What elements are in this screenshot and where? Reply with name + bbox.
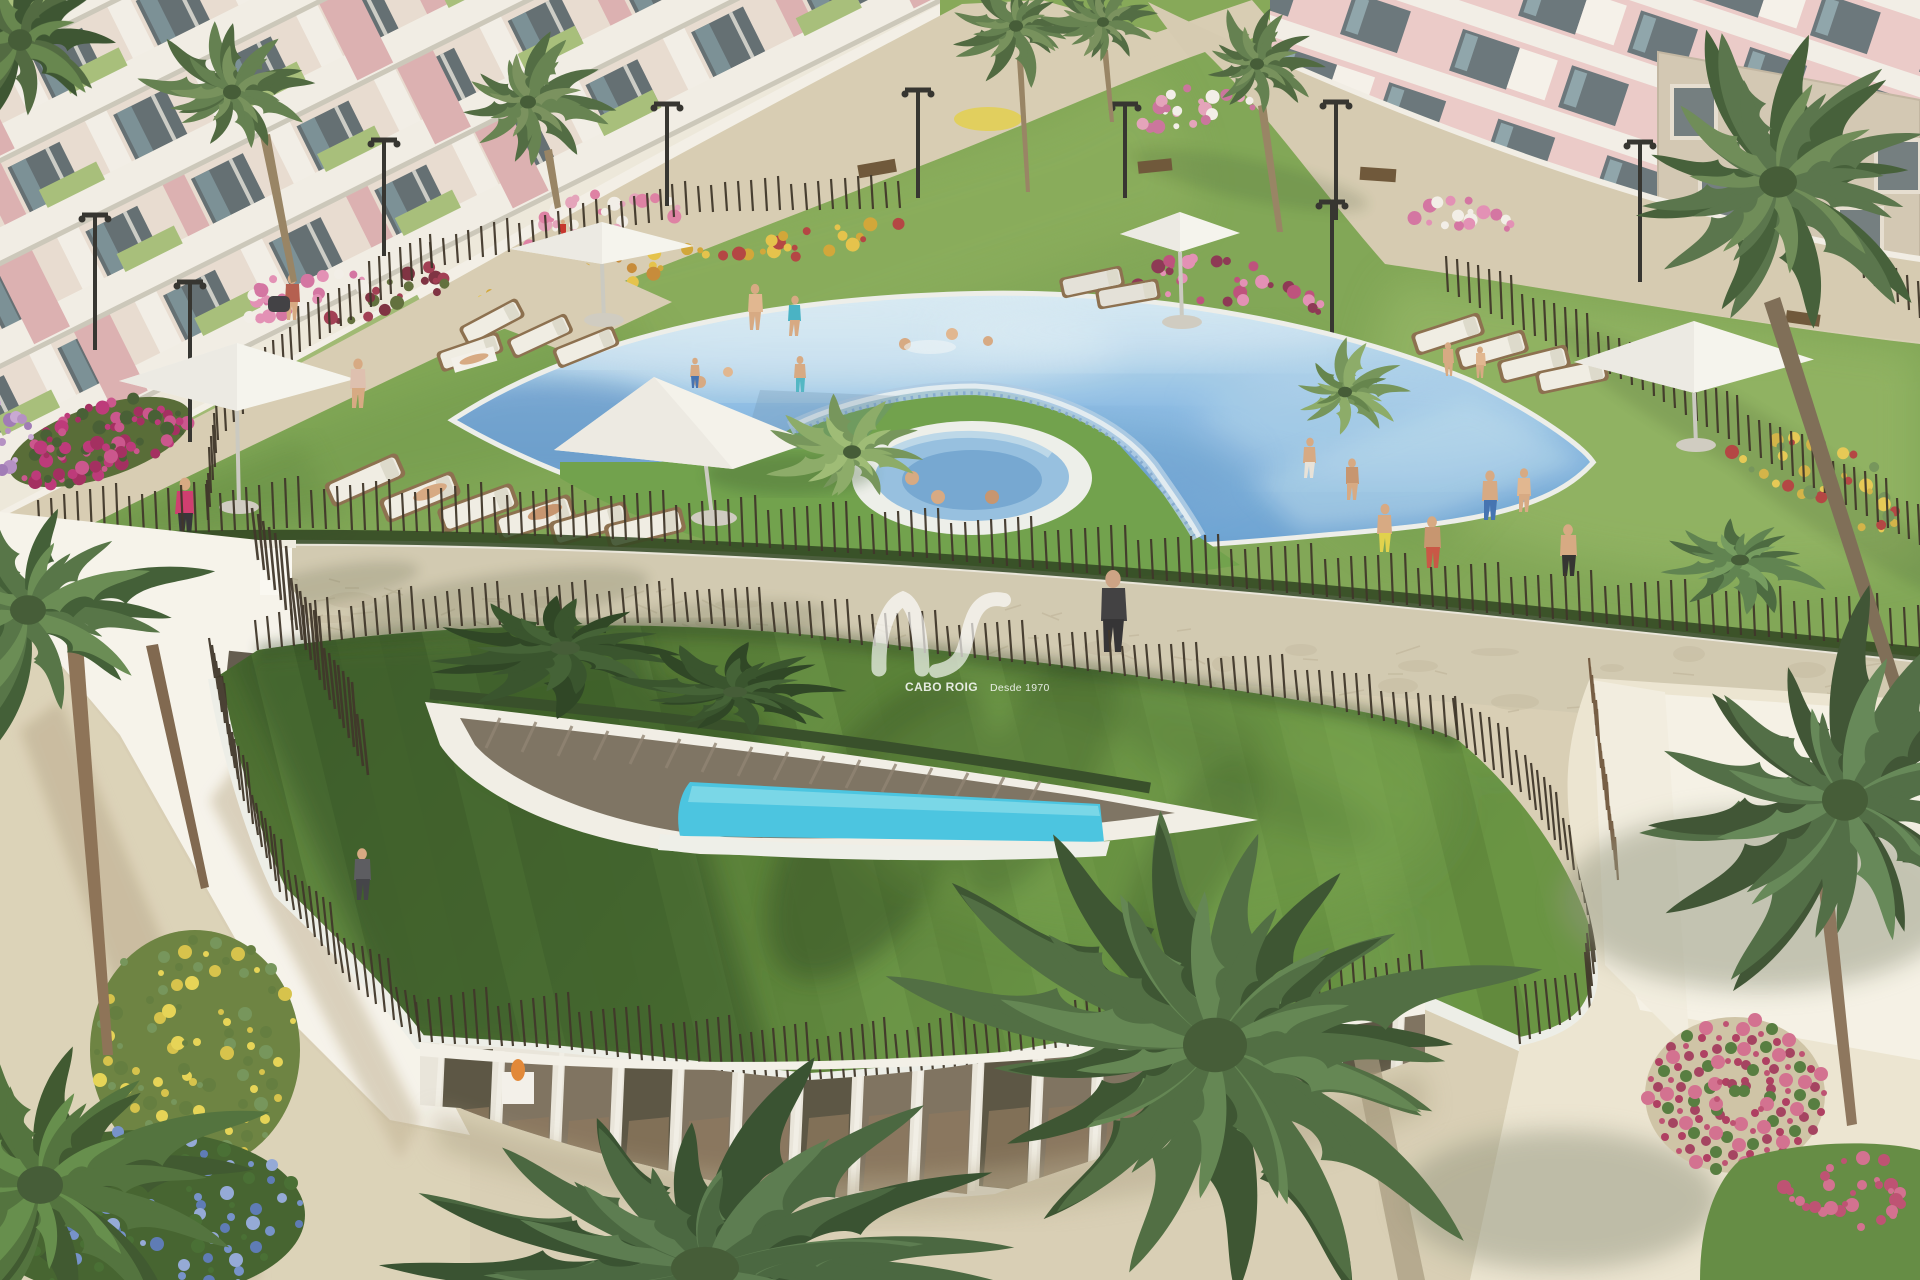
svg-text:Desde 1970: Desde 1970 bbox=[990, 682, 1050, 694]
svg-text:CABO ROIG: CABO ROIG bbox=[905, 680, 978, 694]
